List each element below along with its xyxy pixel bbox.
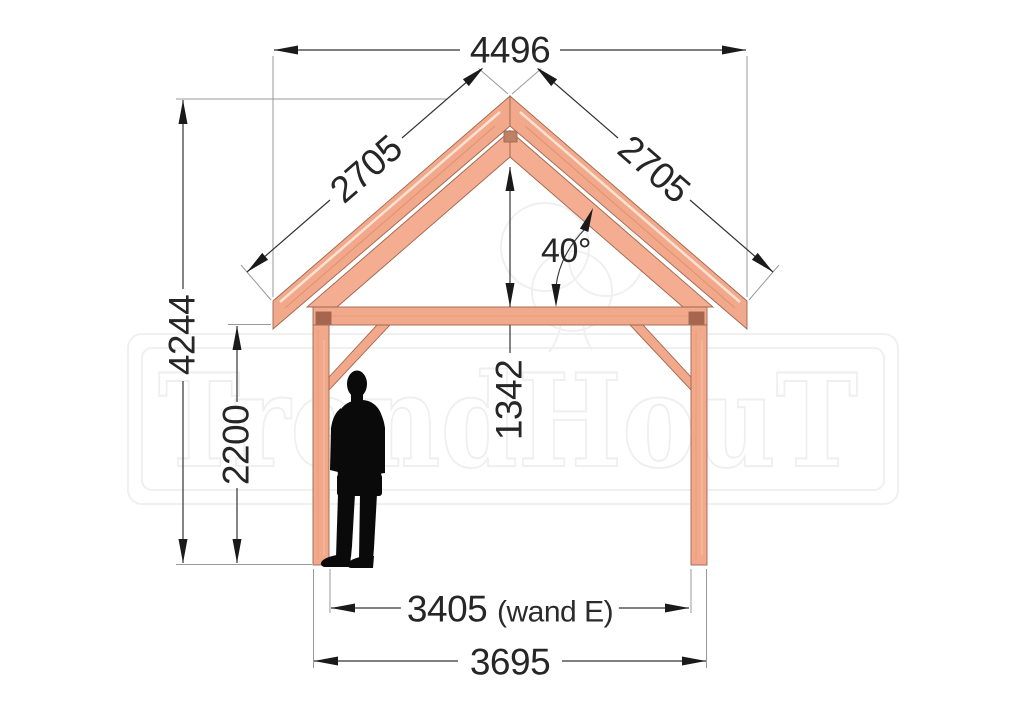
left-post-tenon bbox=[316, 312, 331, 324]
dimension-label-roof-width: 4496 bbox=[464, 32, 556, 69]
top-beam bbox=[313, 307, 707, 325]
right-post bbox=[691, 325, 707, 565]
dimension-label-total-height: 4244 bbox=[164, 295, 201, 375]
inner-span-value: 3405 bbox=[407, 589, 487, 630]
dimension-label-post-height: 2200 bbox=[218, 405, 255, 485]
watermark-tree-logo bbox=[501, 203, 643, 352]
inner-span-note: (wand E) bbox=[497, 596, 613, 629]
dimension-label-truss-height: 1342 bbox=[491, 360, 528, 440]
dimension-label-outer-span: 3695 bbox=[464, 644, 556, 681]
right-rafter bbox=[510, 96, 747, 329]
ridge-joint-block bbox=[504, 131, 517, 142]
technical-drawing-canvas: TrendHouT bbox=[0, 0, 1024, 704]
left-post bbox=[313, 325, 329, 565]
right-post-tenon bbox=[689, 312, 704, 324]
dimension-label-inner-span: 3405 (wand E) bbox=[401, 591, 619, 628]
dimension-label-roof-angle: 40° bbox=[541, 234, 591, 268]
left-rafter bbox=[273, 96, 510, 329]
